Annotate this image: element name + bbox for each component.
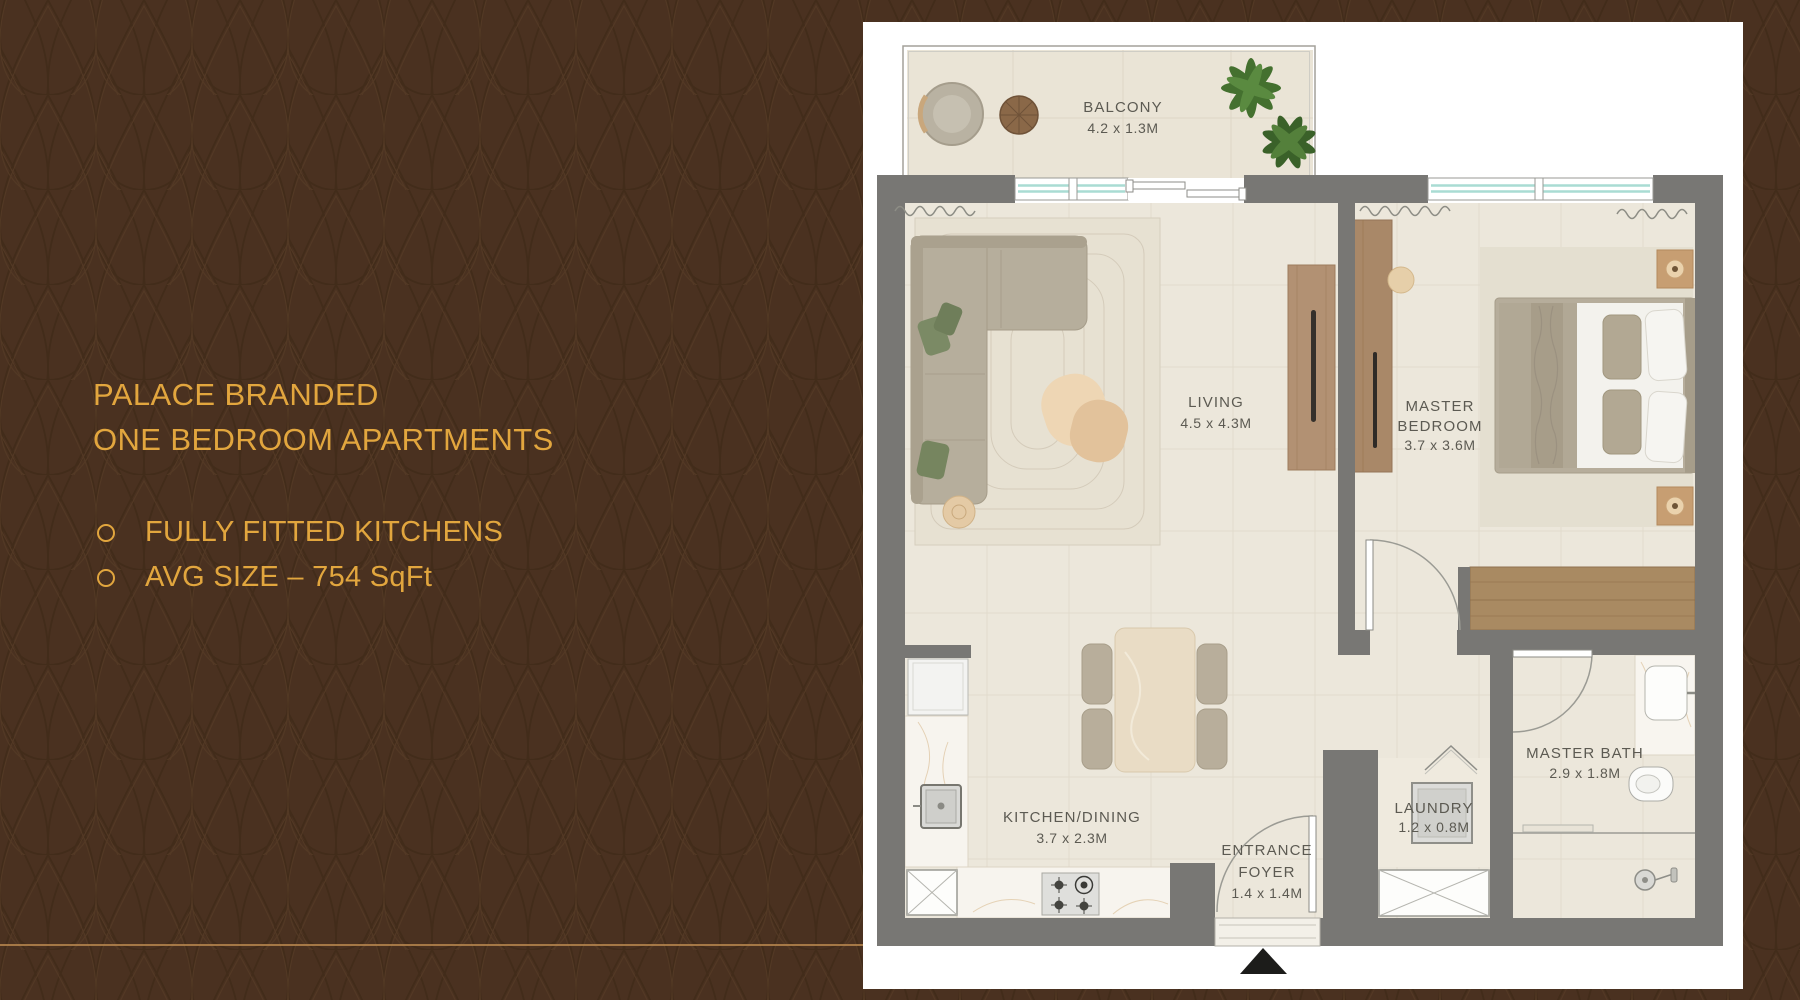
balcony-dims: 4.2 x 1.3M: [1087, 120, 1158, 136]
kitchen-dims: 3.7 x 2.3M: [1036, 830, 1107, 846]
fridge-icon: [908, 659, 968, 715]
shaft-icon: [1379, 870, 1489, 916]
nightstand-icon: [1657, 250, 1693, 288]
balcony-label: BALCONY: [1083, 99, 1162, 116]
floor-plan: BALCONY 4.2 x 1.3M LIVING 4.5 x 4.3M MAS…: [863, 22, 1743, 989]
divider-line: [0, 944, 863, 946]
living-window: [1015, 178, 1128, 200]
title-line-1: PALACE BRANDED: [93, 372, 554, 417]
bullet-list: FULLY FITTED KITCHENS AVG SIZE – 754 SqF…: [0, 510, 503, 600]
shaft-icon: [907, 870, 957, 915]
bullet-item-size: AVG SIZE – 754 SqFt: [0, 555, 503, 600]
slide-title: PALACE BRANDED ONE BEDROOM APARTMENTS: [93, 372, 554, 462]
nightstand-icon: [1657, 487, 1693, 525]
slide: PALACE BRANDED ONE BEDROOM APARTMENTS FU…: [0, 0, 1800, 1000]
entrance-label: FOYER: [1238, 864, 1295, 881]
master-bedroom-dims: 3.7 x 3.6M: [1404, 437, 1475, 453]
stove-icon: [1042, 873, 1099, 915]
sink-icon: [913, 785, 961, 828]
entrance-threshold: [1215, 918, 1320, 946]
entrance-label: ENTRANCE: [1221, 842, 1312, 859]
bullet-circle-icon: [97, 524, 115, 542]
master-bath-label: MASTER BATH: [1526, 745, 1644, 762]
floor-plan-panel: BALCONY 4.2 x 1.3M LIVING 4.5 x 4.3M MAS…: [863, 22, 1743, 989]
console-icon: [1470, 567, 1695, 630]
laundry-dims: 1.2 x 0.8M: [1398, 819, 1469, 835]
master-bedroom-label: MASTER: [1405, 398, 1474, 415]
left-panel: PALACE BRANDED ONE BEDROOM APARTMENTS FU…: [0, 0, 863, 1000]
master-bath-dims: 2.9 x 1.8M: [1549, 765, 1620, 781]
title-line-2: ONE BEDROOM APARTMENTS: [93, 417, 554, 462]
bath-vanity: [1635, 655, 1696, 755]
bullet-text: FULLY FITTED KITCHENS: [145, 516, 503, 549]
master-bedroom-label: BEDROOM: [1397, 418, 1482, 435]
wardrobe-icon: [1353, 220, 1392, 472]
balcony-sliding-door: [1126, 178, 1246, 200]
bedroom-window: [1428, 178, 1653, 200]
balcony-chair-icon: [920, 83, 983, 145]
entrance-dims: 1.4 x 1.4M: [1231, 885, 1302, 901]
laundry-label: LAUNDRY: [1394, 800, 1473, 817]
bullet-circle-icon: [97, 569, 115, 587]
living-dims: 4.5 x 4.3M: [1180, 415, 1251, 431]
kitchen-label: KITCHEN/DINING: [1003, 809, 1141, 826]
bed-icon: [1495, 298, 1695, 473]
dining-table-icon: [1082, 628, 1227, 772]
bullet-item-kitchens: FULLY FITTED KITCHENS: [0, 510, 503, 555]
tv-unit-icon: [1288, 265, 1335, 470]
side-table-icon: [943, 496, 975, 528]
bullet-text: AVG SIZE – 754 SqFt: [145, 561, 432, 594]
balcony-table-icon: [1000, 96, 1038, 134]
stool-icon: [1388, 267, 1414, 293]
toilet-icon: [1629, 767, 1673, 801]
living-label: LIVING: [1188, 394, 1244, 411]
entrance-arrow-icon: [1240, 948, 1287, 974]
